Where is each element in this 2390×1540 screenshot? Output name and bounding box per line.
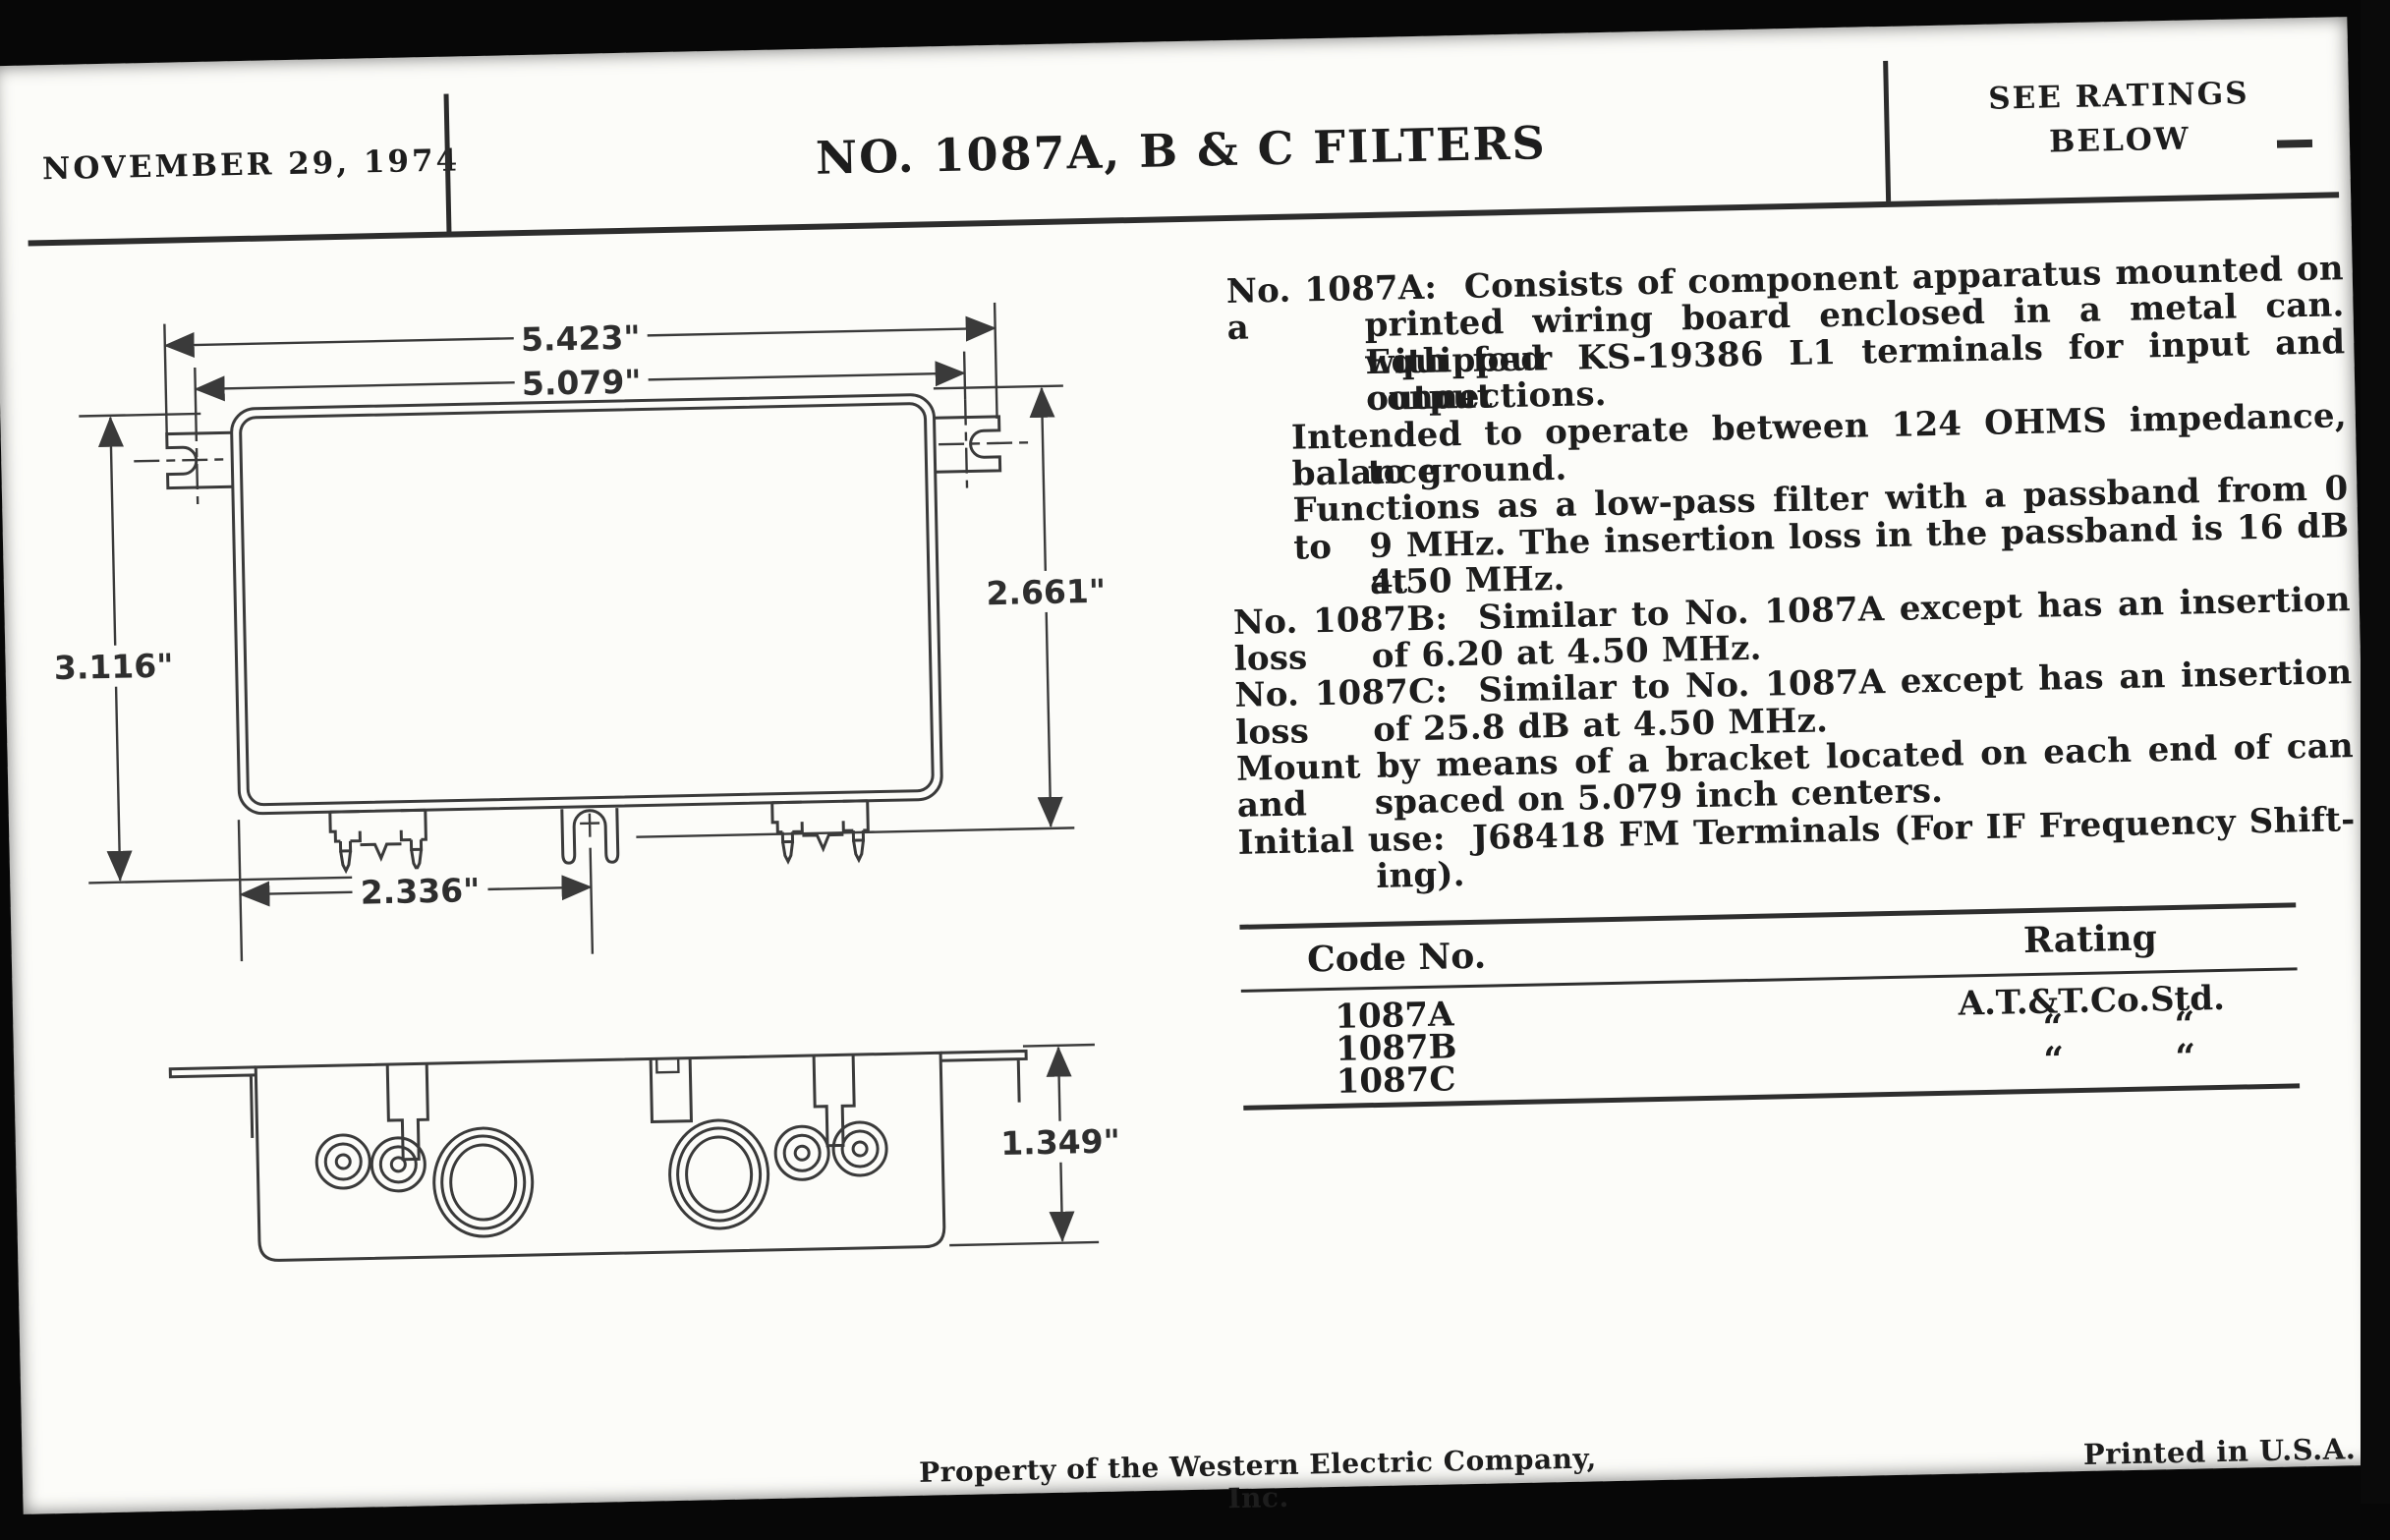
- dimension-height-right: 2.661": [627, 385, 1115, 837]
- mounting-bracket-left: [133, 415, 233, 505]
- issue-date: NOVEMBER 29, 1974: [42, 143, 461, 187]
- small-eyelet-4: [833, 1121, 887, 1175]
- terminals-right-group: [772, 801, 869, 862]
- dimension-width-outer: 5.423": [164, 309, 996, 367]
- large-eyelet-2: [668, 1119, 768, 1229]
- terminals-left-group: [330, 810, 427, 871]
- scanned-spec-sheet: { "colors": { "paper": "#fcfcf9", "ink":…: [0, 0, 2390, 1504]
- small-eyelet-2: [371, 1137, 426, 1191]
- large-eyelet-1: [433, 1127, 534, 1237]
- header-divider-right: [1883, 61, 1891, 201]
- side-center-tab: [651, 1058, 691, 1122]
- printed-note: Printed in U.S.A.: [2083, 1432, 2357, 1471]
- page-title: NO. 1087A, B & C FILTERS: [674, 113, 1687, 188]
- dim-label-terminal-spacing: 2.336": [360, 871, 480, 912]
- header-rule: [28, 192, 2340, 246]
- code-number-cell: 1087C: [1336, 1059, 1456, 1102]
- filter-can-side-view-drawing: 1.349": [153, 1023, 1151, 1289]
- spec-paragraphs: No. 1087A: Consists of component apparat…: [1226, 251, 2357, 898]
- dim-label-height-right: 2.661": [986, 572, 1106, 613]
- side-terminal-posts: [387, 1055, 855, 1160]
- column-header-code: Code No.: [1307, 936, 1487, 981]
- mounting-bracket-right: [934, 398, 1034, 488]
- ratings-note: SEE RATINGS BELOW: [1908, 70, 2331, 167]
- dimension-terminal-spacing: 2.336": [240, 866, 592, 914]
- scan-edge-right: [2361, 0, 2390, 1504]
- small-eyelet-1: [316, 1134, 370, 1188]
- dim-label-mounting-centers: 5.079": [522, 363, 642, 404]
- column-header-rating: Rating: [1971, 916, 2208, 962]
- filter-can-front-view-drawing: 5.423" 5.079" 3: [29, 287, 1085, 987]
- dim-label-can-height: 1.349": [1000, 1121, 1120, 1163]
- scan-artifact-line: [2277, 140, 2312, 148]
- dimension-can-height: 1.349": [945, 1044, 1122, 1245]
- dim-label-width-outer: 5.423": [521, 318, 641, 360]
- side-can-outline: [170, 1051, 1030, 1262]
- sheet-content: NOVEMBER 29, 1974 NO. 1087A, B & C FILTE…: [0, 0, 2390, 1528]
- small-eyelet-3: [775, 1126, 829, 1180]
- can-outline: [231, 394, 941, 814]
- paper-sheet: NOVEMBER 29, 1974 NO. 1087A, B & C FILTE…: [0, 17, 2377, 1514]
- ditto-mark: “: [2175, 1037, 2196, 1078]
- ratings-note-line2: BELOW: [1908, 114, 2330, 167]
- dim-label-height-left: 3.116": [53, 647, 173, 688]
- ditto-mark: “: [2043, 1039, 2065, 1080]
- property-note: Property of the Western Electric Company…: [899, 1442, 1618, 1521]
